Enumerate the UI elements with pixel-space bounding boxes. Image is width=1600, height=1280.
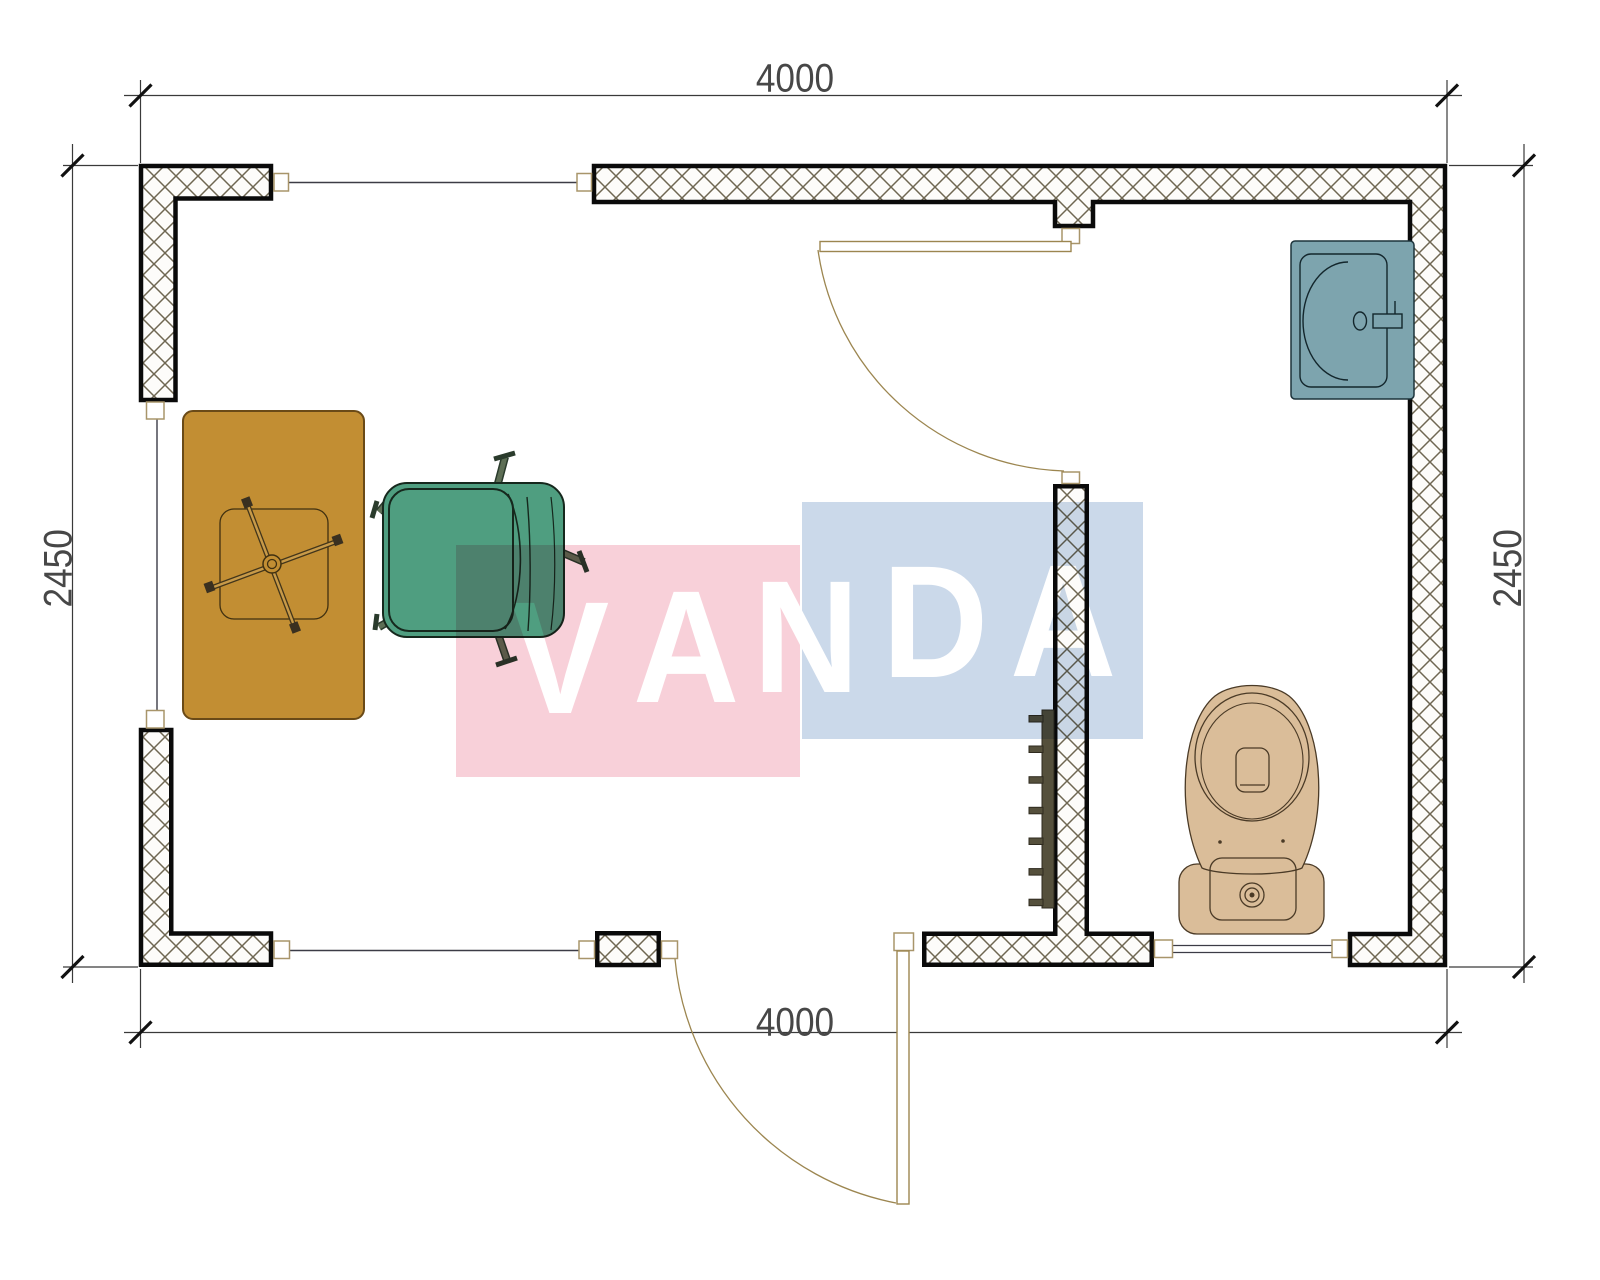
svg-text:A: A xyxy=(633,557,739,736)
svg-text:N: N xyxy=(753,547,859,726)
svg-text:A: A xyxy=(1010,531,1116,710)
svg-text:D: D xyxy=(882,532,988,711)
svg-text:V: V xyxy=(511,568,609,747)
